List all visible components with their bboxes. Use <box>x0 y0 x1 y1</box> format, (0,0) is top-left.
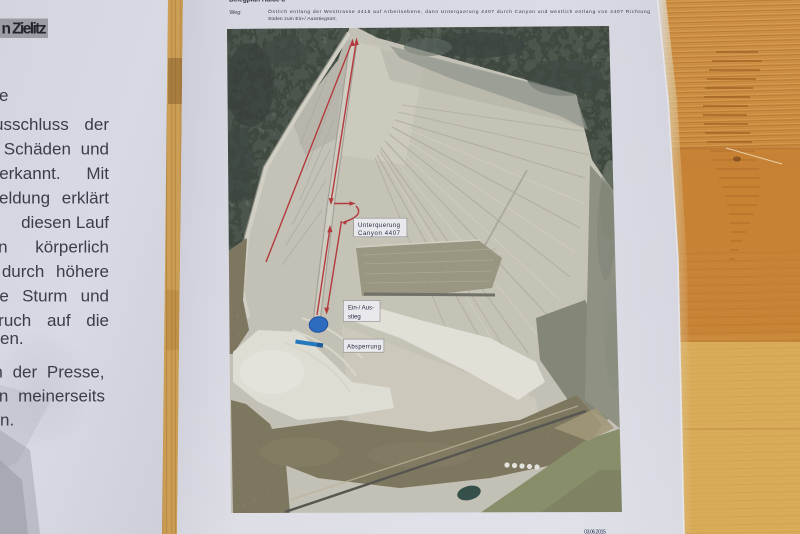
svg-text:03.06.2015: 03.06.2015 <box>584 530 606 534</box>
svg-text:n meinerseits: n meinerseits <box>0 387 105 406</box>
svg-text:n der Presse,: n der Presse, <box>0 363 105 382</box>
svg-text:ruch auf die: ruch auf die <box>0 311 109 330</box>
svg-text:Ein-/ Aus-: Ein-/ Aus- <box>348 306 374 312</box>
svg-text:erkannt. Mit: erkannt. Mit <box>0 164 109 183</box>
svg-text:Süden zum Ein-/ Ausstiegsort.: Süden zum Ein-/ Ausstiegsort. <box>268 16 337 22</box>
svg-text:Schäden und: Schäden und <box>4 140 109 159</box>
svg-text:eldung erklärt: eldung erklärt <box>0 189 109 208</box>
svg-text:n.: n. <box>0 411 14 430</box>
svg-text:Östlich entlang der Westtrasse: Östlich entlang der Westtrasse 4415 auf … <box>268 8 650 15</box>
svg-text:Ausschluss der: Ausschluss der <box>0 115 109 134</box>
svg-text:durch höhere: durch höhere <box>2 262 109 281</box>
svg-text:diesen Lauf: diesen Lauf <box>21 213 109 232</box>
svg-text:en.: en. <box>0 329 24 348</box>
svg-text:Absperrung: Absperrung <box>347 345 381 351</box>
svg-text:e Sturm und: e Sturm und <box>0 287 109 306</box>
svg-text:Belegplan Halde 8: Belegplan Halde 8 <box>229 0 285 3</box>
svg-text:Unterquerung: Unterquerung <box>358 223 400 229</box>
svg-text:n Zielitz: n Zielitz <box>2 21 47 38</box>
svg-text:Canyon 4407: Canyon 4407 <box>358 231 401 237</box>
svg-text:Weg:: Weg: <box>230 10 242 16</box>
svg-text:n körperlich: n körperlich <box>0 238 109 257</box>
svg-text:stieg: stieg <box>348 315 361 321</box>
svg-text:e: e <box>0 86 8 105</box>
